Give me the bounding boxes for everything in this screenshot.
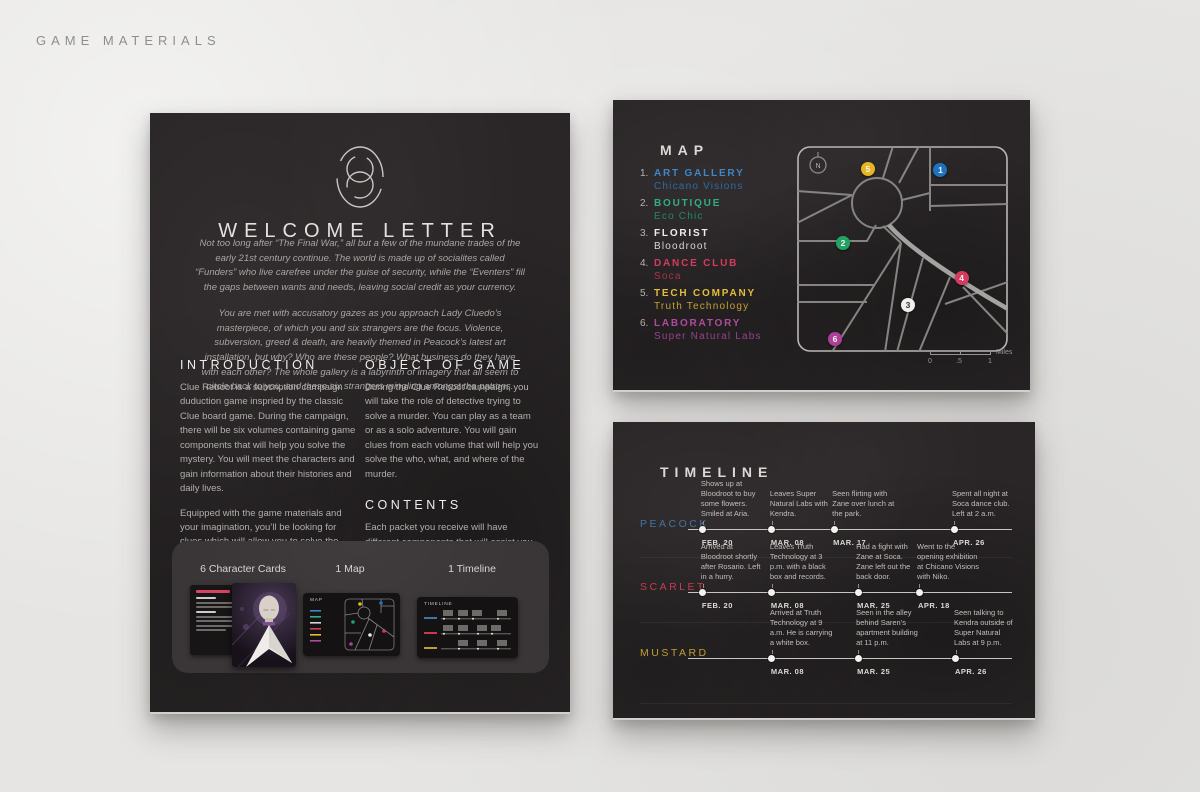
timeline-card: TIMELINE PEACOCK Shows up at Bloodroot t… <box>613 422 1035 720</box>
map-marker-6: 6 <box>828 332 842 346</box>
timeline-track-scarlet: Arrived at Bloodroot shortly after Rosar… <box>688 592 1012 593</box>
legend-number: 2. <box>640 198 648 209</box>
strip-label-character-cards: 6 Character Cards <box>200 563 286 575</box>
city-map: N 5 1 2 4 3 6 <box>797 146 1008 352</box>
legend-category: BOUTIQUE <box>654 198 790 209</box>
legend-number: 1. <box>640 168 648 179</box>
event-dot <box>699 526 706 533</box>
scale-start: 0 <box>928 358 932 365</box>
legend-item-boutique: 2. BOUTIQUE Eco Chic <box>640 198 790 222</box>
event-dot <box>768 526 775 533</box>
section-paragraph: During the Clue Reboot campaign, you wil… <box>365 381 541 482</box>
scale-end: 1 <box>988 358 992 365</box>
legend-item-laboratory: 6. LABORATORY Super Natural Labs <box>640 318 790 342</box>
event-dot <box>768 655 775 662</box>
legend-item-art-gallery: 1. ART GALLERY Chicano Visions <box>640 168 790 192</box>
legend-category: LABORATORY <box>654 318 790 329</box>
map-scale-bar: 0 .5 1 Miles <box>930 348 1020 370</box>
section-heading-object-of-game: OBJECT OF GAME <box>365 358 541 372</box>
map-marker-1: 1 <box>933 163 947 177</box>
event-dot <box>699 589 706 596</box>
map-marker-3: 3 <box>901 298 915 312</box>
section-paragraph: Clue Reboot is a subcription campaign du… <box>180 381 356 497</box>
character-portrait <box>232 583 296 667</box>
map-marker-2: 2 <box>836 236 850 250</box>
legend-item-dance-club: 4. DANCE CLUB Soca <box>640 258 790 282</box>
welcome-letter-card: WELCOME LETTER Not too long after “The F… <box>150 113 570 714</box>
timeline-title: TIMELINE <box>660 464 773 480</box>
legend-name: Bloodroot <box>654 241 790 252</box>
strip-label-map: 1 Map <box>335 563 364 575</box>
section-heading-introduction: INTRODUCTION <box>180 358 356 372</box>
legend-item-florist: 3. FLORIST Bloodroot <box>640 228 790 252</box>
cluedo-monogram-icon <box>334 145 386 209</box>
event-dot <box>855 655 862 662</box>
intro-paragraph: Not too long after “The Final War,” all … <box>195 237 525 296</box>
map-roads-graphic: N <box>797 146 1008 352</box>
legend-category: DANCE CLUB <box>654 258 790 269</box>
event-dot <box>768 589 775 596</box>
legend-category: FLORIST <box>654 228 790 239</box>
legend-name: Truth Technology <box>654 301 790 312</box>
section-heading-contents: CONTENTS <box>365 498 541 512</box>
timeline-track-peacock: Shows up at Bloodroot to buy some flower… <box>688 529 1012 530</box>
timeline-thumbnail: TIMELINE <box>417 597 518 658</box>
event-dot <box>831 526 838 533</box>
legend-number: 3. <box>640 228 648 239</box>
event-dot <box>952 655 959 662</box>
compass-north-label: N <box>815 163 820 170</box>
map-card: MAP 1. ART GALLERY Chicano Visions 2. BO… <box>613 100 1030 392</box>
strip-label-timeline: 1 Timeline <box>448 563 496 575</box>
legend-number: 5. <box>640 288 648 299</box>
legend-number: 6. <box>640 318 648 329</box>
legend-category: TECH COMPANY <box>654 288 790 299</box>
event-dot <box>855 589 862 596</box>
row-divider <box>640 703 1012 704</box>
legend-item-tech-company: 5. TECH COMPANY Truth Technology <box>640 288 790 312</box>
page-title: GAME MATERIALS <box>36 33 221 48</box>
event-dot <box>916 589 923 596</box>
legend-category: ART GALLERY <box>654 168 790 179</box>
legend-name: Eco Chic <box>654 211 790 222</box>
map-marker-5: 5 <box>861 162 875 176</box>
legend-number: 4. <box>640 258 648 269</box>
components-strip: 6 Character Cards 1 Map 1 Timeline <box>172 541 549 673</box>
character-card-front-thumbnail <box>232 583 296 667</box>
event-dot <box>951 526 958 533</box>
map-marker-4: 4 <box>955 271 969 285</box>
legend-name: Soca <box>654 271 790 282</box>
timeline-track-mustard: Arrived at Truth Technology at 9 a.m. He… <box>688 658 1012 659</box>
scale-mid: .5 <box>956 358 962 365</box>
map-title: MAP <box>660 142 709 158</box>
scale-unit: Miles <box>996 349 1012 356</box>
legend-name: Super Natural Labs <box>654 331 790 342</box>
map-thumbnail: MAP <box>303 593 400 656</box>
legend-name: Chicano Visions <box>654 181 790 192</box>
